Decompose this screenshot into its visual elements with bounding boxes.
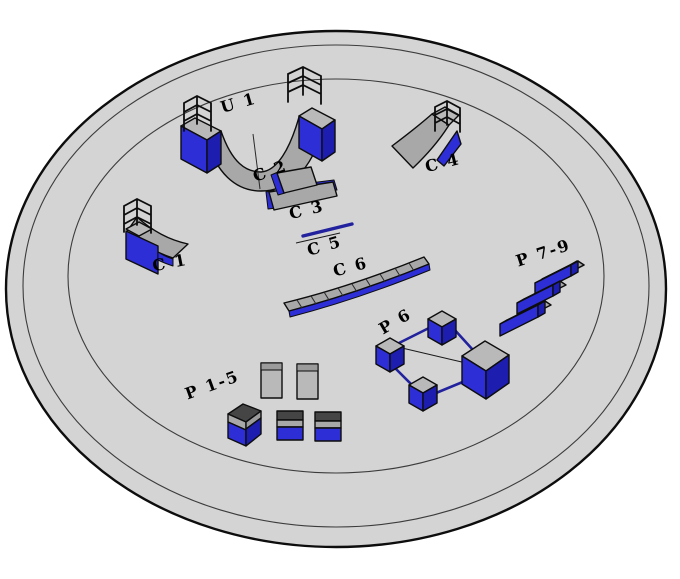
p1-5-cube-2: [277, 411, 303, 440]
p1-5-cube-3: [315, 412, 341, 441]
p1-5-tall-pad-2: [297, 364, 318, 399]
skatepark-3d-viewport: U 1 C 4 C 1 C 3 C 2 C 5: [0, 0, 680, 579]
p6-top-box: [428, 311, 456, 345]
p1-5-tall-pad-1: [261, 363, 282, 398]
p6-bottom-box: [409, 377, 437, 411]
p6-left-box: [376, 338, 404, 372]
